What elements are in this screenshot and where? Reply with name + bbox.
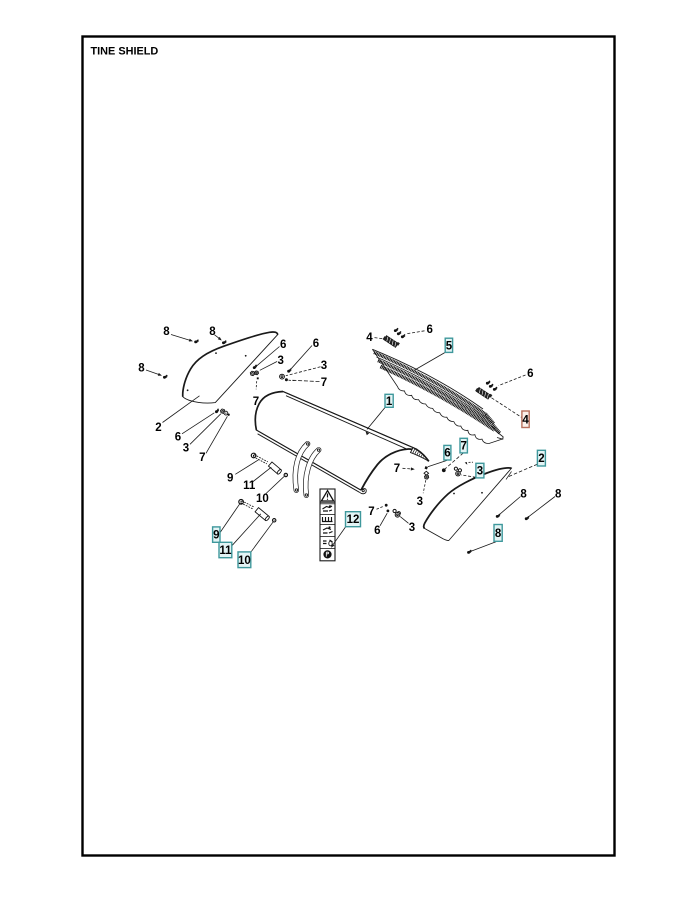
svg-text:2: 2 — [155, 422, 161, 434]
svg-text:8: 8 — [520, 488, 527, 500]
svg-text:4: 4 — [366, 332, 373, 344]
svg-text:8: 8 — [495, 528, 502, 540]
svg-text:12: 12 — [347, 514, 360, 526]
svg-text:10: 10 — [256, 493, 269, 505]
svg-text:3: 3 — [409, 522, 415, 534]
svg-text:3: 3 — [277, 355, 283, 367]
svg-text:3: 3 — [183, 443, 189, 455]
svg-text:9: 9 — [213, 530, 219, 542]
svg-text:6: 6 — [426, 324, 432, 336]
svg-text:10: 10 — [238, 555, 251, 567]
svg-text:7: 7 — [368, 506, 374, 518]
svg-text:7: 7 — [199, 452, 205, 464]
svg-text:8: 8 — [555, 489, 562, 501]
svg-text:11: 11 — [219, 545, 232, 557]
svg-text:11: 11 — [243, 480, 256, 492]
svg-text:6: 6 — [280, 339, 286, 351]
svg-text:2: 2 — [538, 453, 544, 465]
svg-text:6: 6 — [175, 432, 181, 444]
svg-text:3: 3 — [477, 466, 483, 478]
svg-text:8: 8 — [163, 326, 170, 338]
svg-text:1: 1 — [386, 396, 393, 408]
svg-text:9: 9 — [227, 473, 233, 485]
svg-text:7: 7 — [321, 377, 327, 389]
svg-text:4: 4 — [522, 414, 529, 426]
svg-text:TINE SHIELD: TINE SHIELD — [91, 46, 159, 58]
svg-text:3: 3 — [417, 496, 423, 508]
svg-text:8: 8 — [138, 363, 145, 375]
svg-text:8: 8 — [209, 326, 216, 338]
svg-text:6: 6 — [313, 338, 319, 350]
svg-text:3: 3 — [321, 360, 327, 372]
svg-text:6: 6 — [527, 368, 533, 380]
svg-text:7: 7 — [394, 463, 400, 475]
svg-text:7: 7 — [253, 396, 259, 408]
svg-text:6: 6 — [374, 525, 380, 537]
svg-text:5: 5 — [446, 340, 453, 352]
svg-text:7: 7 — [460, 441, 466, 453]
svg-text:6: 6 — [444, 448, 450, 460]
